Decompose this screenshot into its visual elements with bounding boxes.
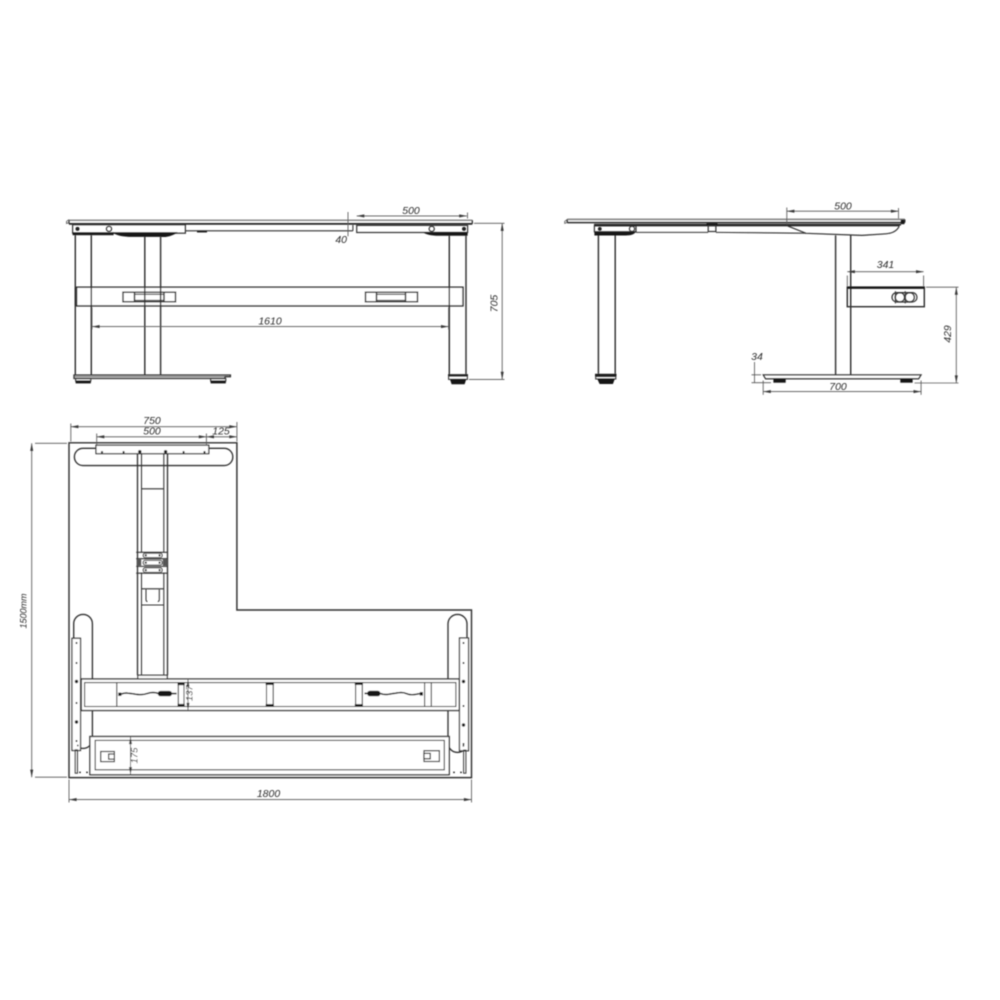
svg-text:700: 700 [829, 381, 847, 393]
svg-text:175: 175 [130, 747, 141, 764]
svg-text:500: 500 [143, 426, 161, 438]
svg-text:500: 500 [402, 205, 420, 217]
svg-text:1500mm: 1500mm [19, 593, 29, 629]
svg-text:429: 429 [942, 325, 954, 343]
svg-text:1800: 1800 [257, 788, 281, 800]
svg-text:705: 705 [489, 295, 501, 313]
svg-text:500: 500 [834, 201, 852, 213]
svg-text:341: 341 [877, 259, 895, 271]
svg-text:137: 137 [185, 685, 196, 702]
svg-text:34: 34 [751, 351, 763, 363]
svg-text:40: 40 [335, 234, 347, 246]
svg-text:1610: 1610 [258, 316, 282, 328]
svg-text:125: 125 [212, 426, 230, 438]
